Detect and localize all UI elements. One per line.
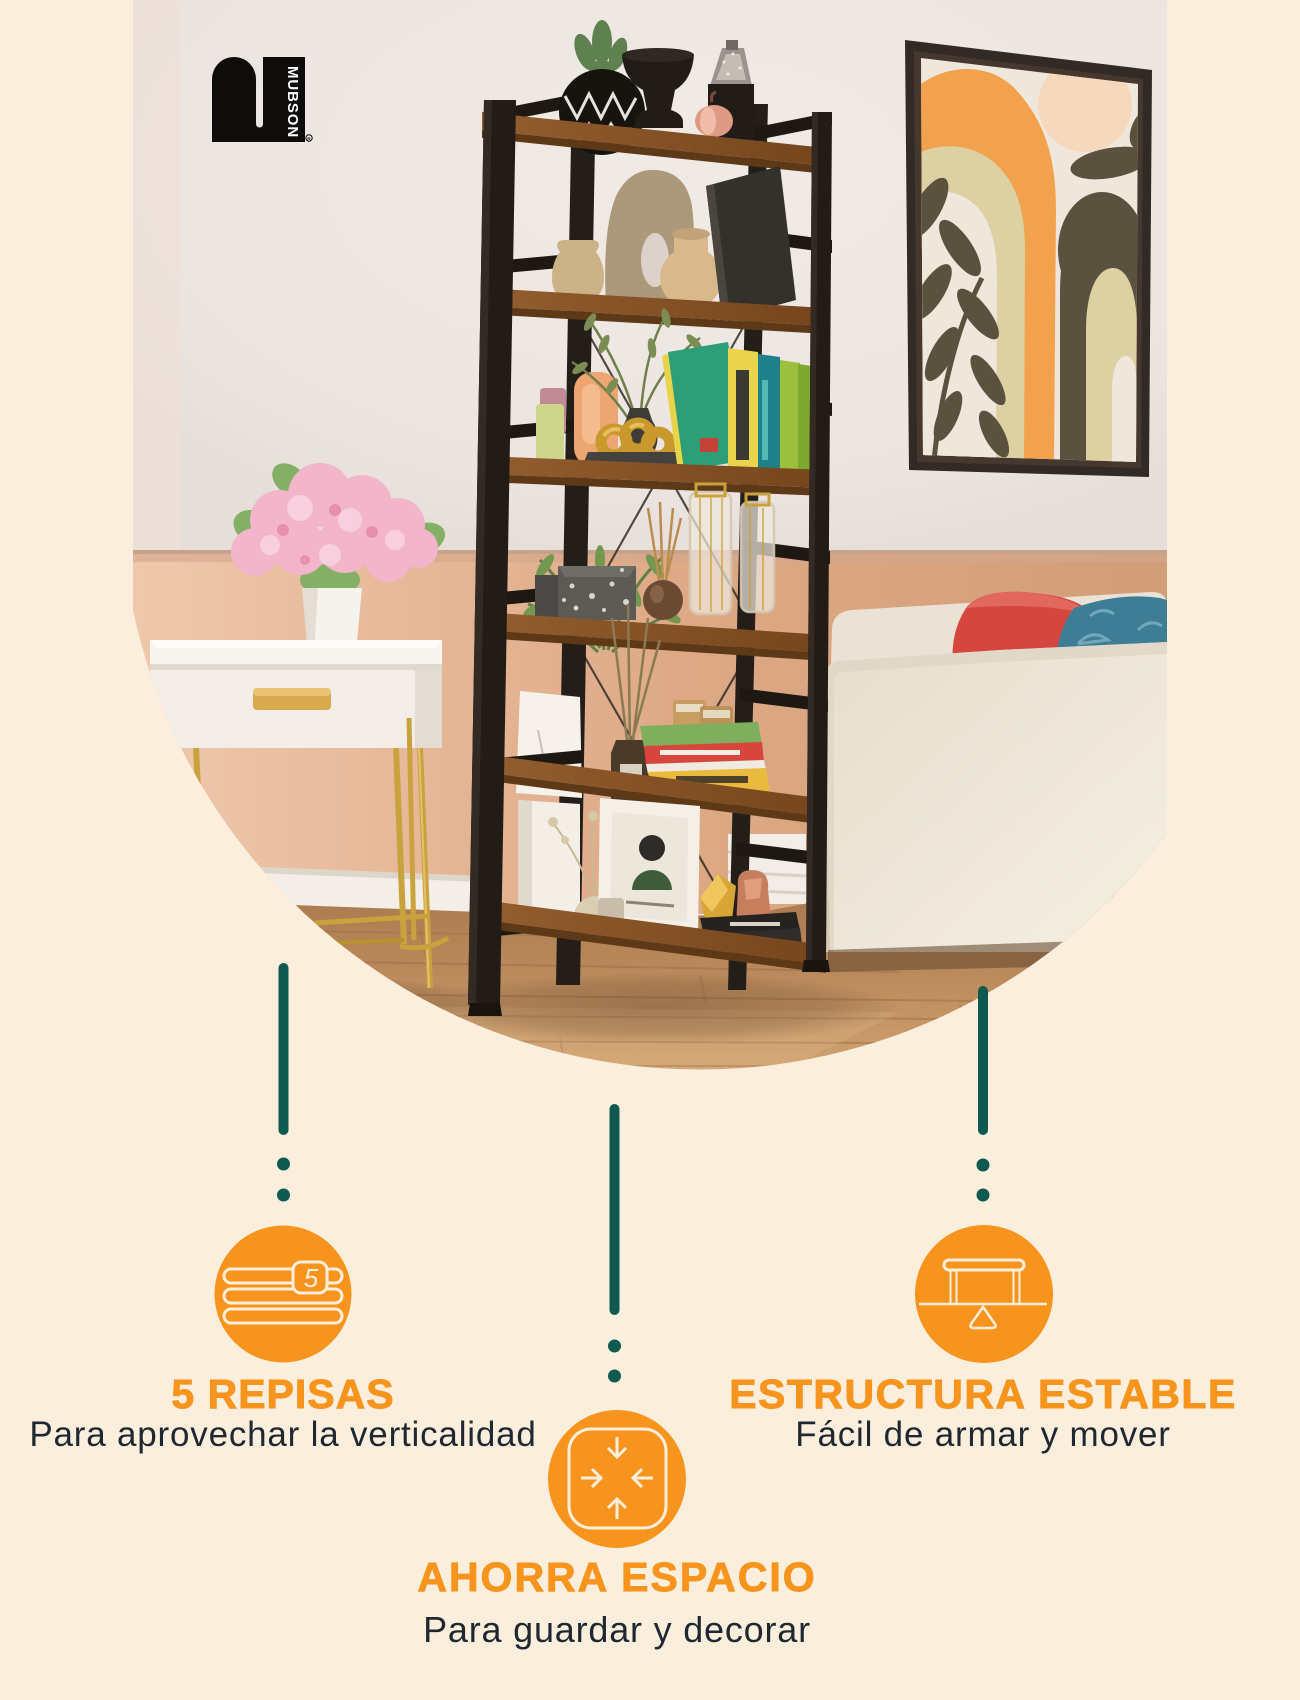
svg-text:MUBSON: MUBSON [284, 66, 301, 138]
svg-text:R: R [307, 136, 311, 142]
svg-text:5: 5 [304, 1263, 319, 1293]
